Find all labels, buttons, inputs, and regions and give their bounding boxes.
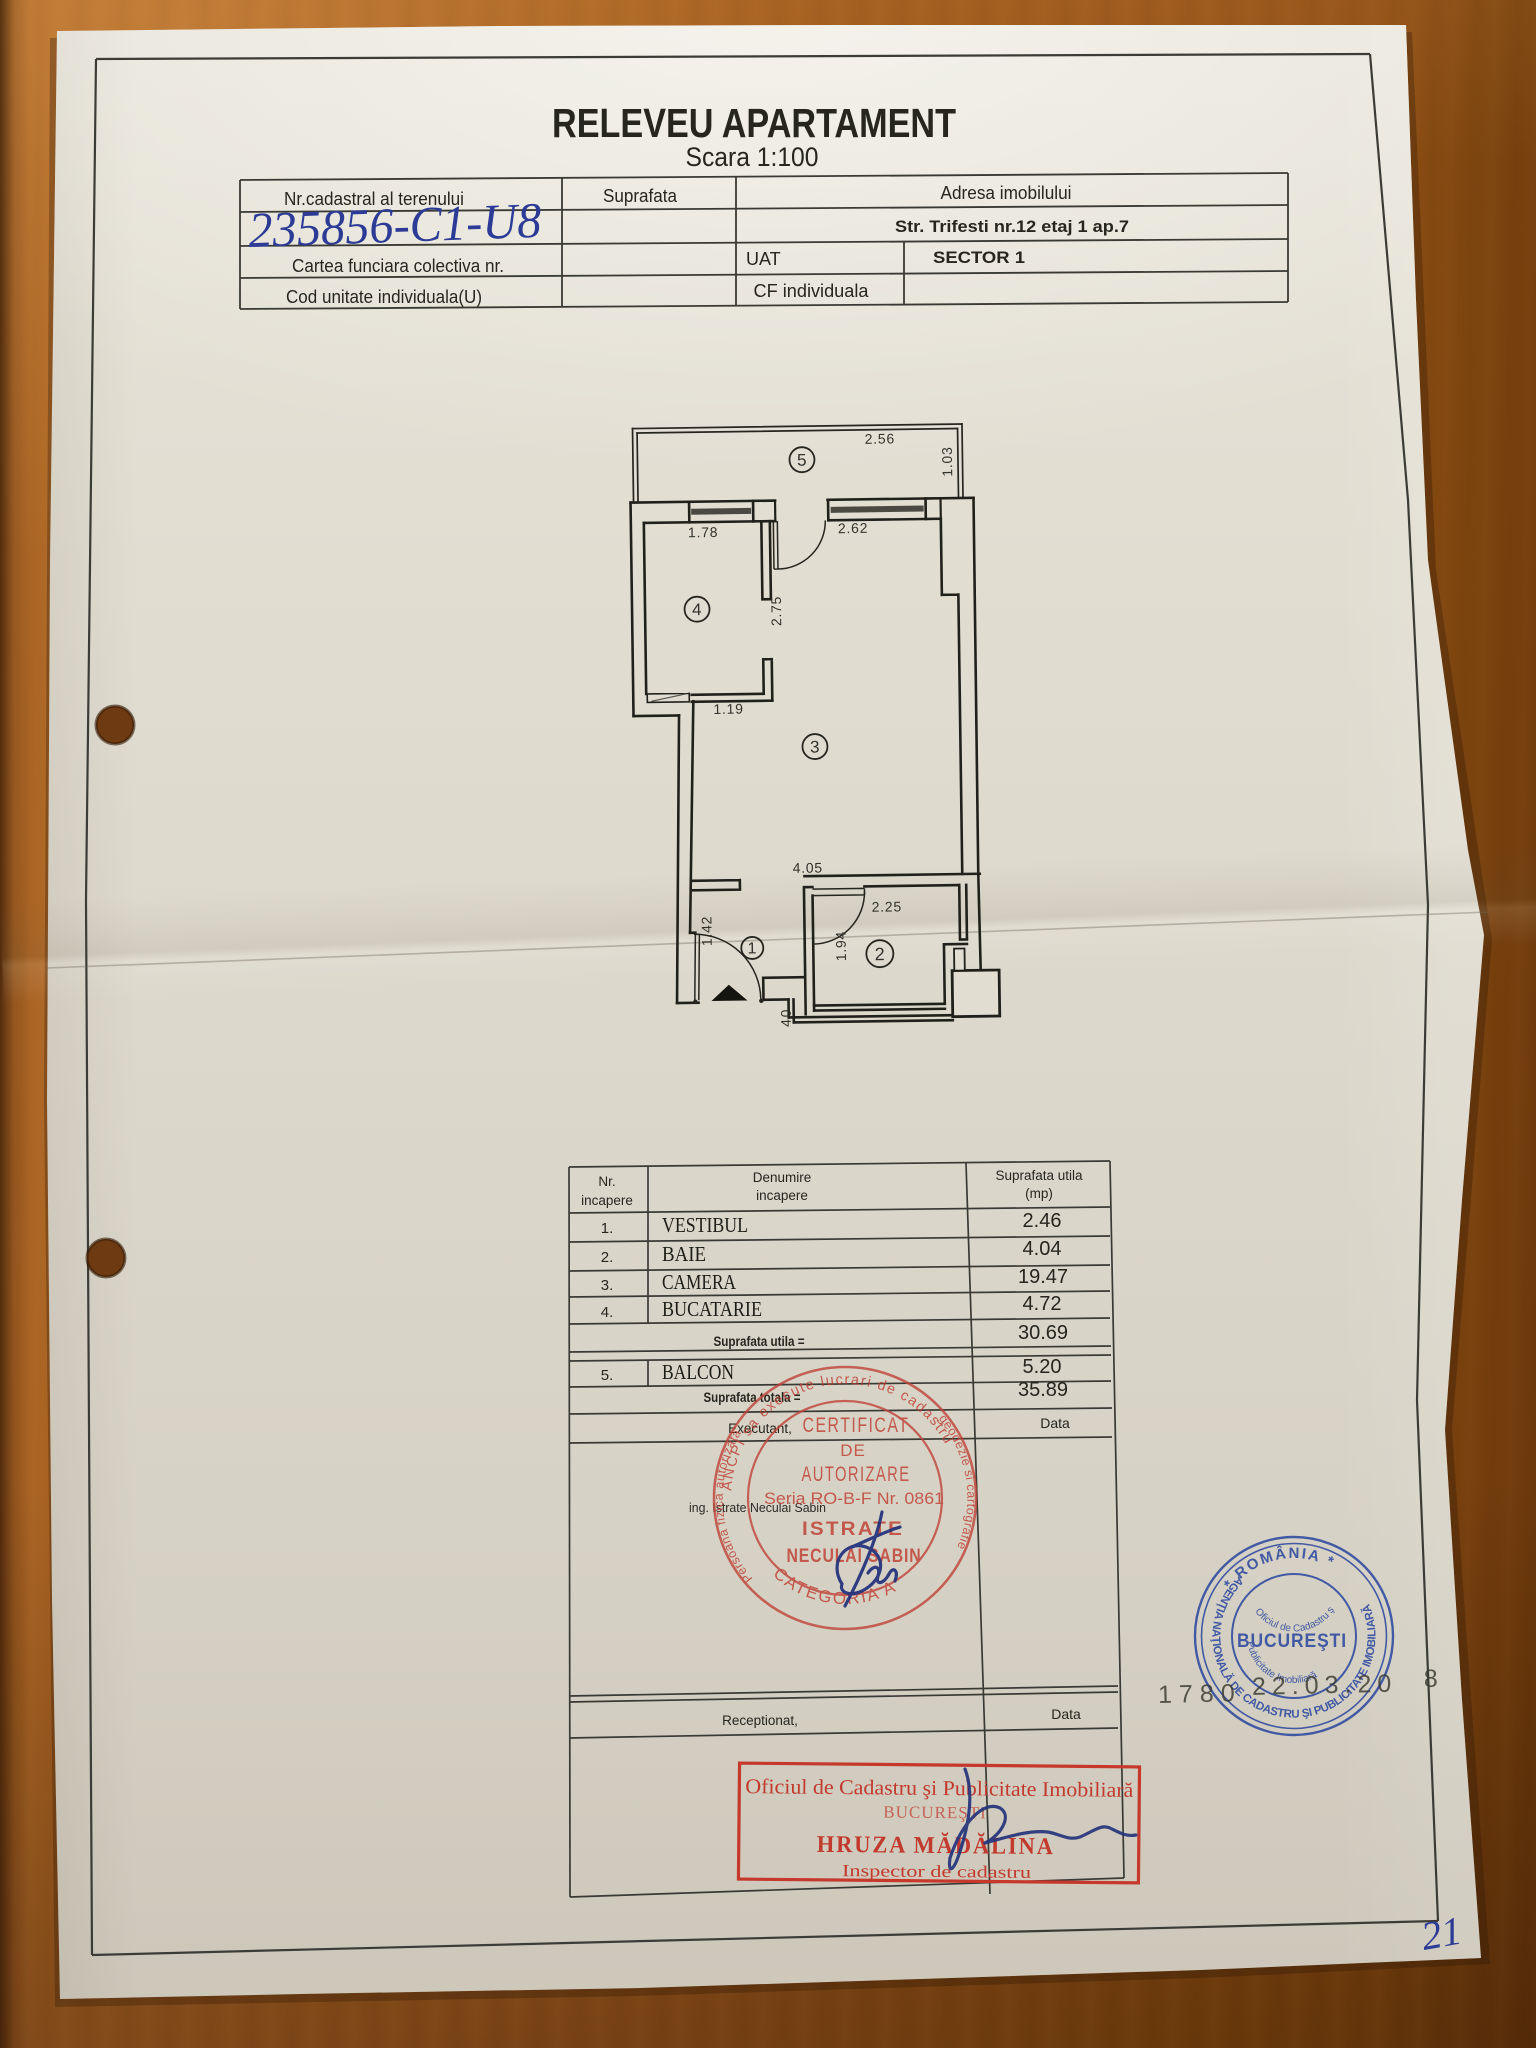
svg-text:incapere: incapere [756,1188,808,1203]
svg-text:8: 8 [1423,1665,1438,1693]
svg-text:1: 1 [747,940,757,957]
svg-text:Data: Data [1040,1415,1070,1431]
svg-text:VESTIBUL: VESTIBUL [662,1213,748,1237]
svg-text:NECULAI SABIN: NECULAI SABIN [787,1546,922,1567]
svg-text:Nr.: Nr. [598,1174,615,1189]
svg-text:UAT: UAT [746,249,781,269]
svg-text:21: 21 [1418,1908,1465,1959]
svg-text:2: 2 [874,944,885,964]
svg-text:CF individuala: CF individuala [754,281,870,301]
svg-text:2.: 2. [601,1249,614,1266]
svg-text:BALCON: BALCON [662,1360,734,1384]
svg-text:Inspector de cadastru: Inspector de cadastru [842,1861,1032,1882]
svg-text:3: 3 [810,737,820,756]
svg-text:Adresa imobilului: Adresa imobilului [941,183,1072,203]
svg-text:1.: 1. [601,1220,614,1237]
svg-text:Oficiul de Cadastru şi Publici: Oficiul de Cadastru şi Publicitate Imobi… [745,1774,1134,1802]
svg-text:5.20: 5.20 [1023,1356,1062,1378]
svg-text:5: 5 [797,451,807,470]
svg-text:CERTIFICAT: CERTIFICAT [803,1414,910,1437]
svg-text:4.72: 4.72 [1023,1293,1062,1315]
svg-text:Cartea funciara colectiva nr.: Cartea funciara colectiva nr. [292,256,504,276]
svg-text:Denumire: Denumire [753,1170,812,1185]
svg-text:4.05: 4.05 [793,859,823,875]
svg-text:30.69: 30.69 [1018,1322,1068,1344]
svg-text:40: 40 [778,1009,794,1027]
svg-text:5.: 5. [601,1367,614,1384]
svg-text:SECTOR 1: SECTOR 1 [933,248,1025,267]
svg-text:3.: 3. [601,1277,614,1294]
svg-text:BUCATARIE: BUCATARIE [662,1297,762,1321]
svg-text:Suprafata utila: Suprafata utila [995,1168,1083,1183]
svg-text:Seria RO-B-F Nr. 0861: Seria RO-B-F Nr. 0861 [764,1489,944,1508]
svg-text:CAMERA: CAMERA [662,1270,737,1294]
svg-text:1.03: 1.03 [939,447,955,477]
svg-text:Receptionat,: Receptionat, [722,1713,798,1728]
svg-text:BAIE: BAIE [662,1242,706,1266]
svg-text:Suprafata: Suprafata [603,186,678,206]
svg-text:2.46: 2.46 [1023,1210,1062,1232]
svg-text:4: 4 [692,600,702,619]
svg-text:(mp): (mp) [1025,1186,1053,1201]
svg-text:1.19: 1.19 [713,701,743,717]
svg-text:incapere: incapere [581,1193,633,1208]
svg-text:1.42: 1.42 [698,916,714,946]
svg-text:1780: 1780 [1158,1679,1242,1709]
svg-text:35.89: 35.89 [1018,1379,1068,1401]
svg-text:19.47: 19.47 [1018,1266,1068,1288]
svg-text:DE: DE [840,1441,866,1460]
svg-text:Oficiul de Cadastru şi: Oficiul de Cadastru şi [0,0,1337,1635]
svg-text:BUCUREŞTI: BUCUREŞTI [1237,1631,1347,1652]
svg-text:Suprafata utila =: Suprafata utila = [714,1334,805,1349]
svg-text:Scara 1:100: Scara 1:100 [686,142,819,172]
svg-text:RELEVEU APARTAMENT: RELEVEU APARTAMENT [552,100,956,146]
svg-text:1.78: 1.78 [688,524,718,540]
svg-text:AUTORIZARE: AUTORIZARE [802,1463,911,1486]
svg-text:Data: Data [1051,1706,1081,1722]
svg-text:Str. Trifesti nr.12 etaj 1 ap.: Str. Trifesti nr.12 etaj 1 ap.7 [895,217,1129,236]
svg-text:235856-C1-U8: 235856-C1-U8 [247,192,542,258]
svg-text:22.03.20: 22.03.20 [1252,1670,1398,1701]
svg-text:4.04: 4.04 [1023,1238,1062,1260]
svg-text:2.25: 2.25 [872,898,902,914]
svg-text:2.62: 2.62 [838,520,868,536]
svg-text:Cod unitate individuala(U): Cod unitate individuala(U) [286,287,482,307]
svg-text:2.75: 2.75 [768,596,784,626]
svg-text:4.: 4. [601,1304,614,1321]
svg-text:2.56: 2.56 [865,430,895,446]
svg-text:1.94: 1.94 [833,931,849,961]
